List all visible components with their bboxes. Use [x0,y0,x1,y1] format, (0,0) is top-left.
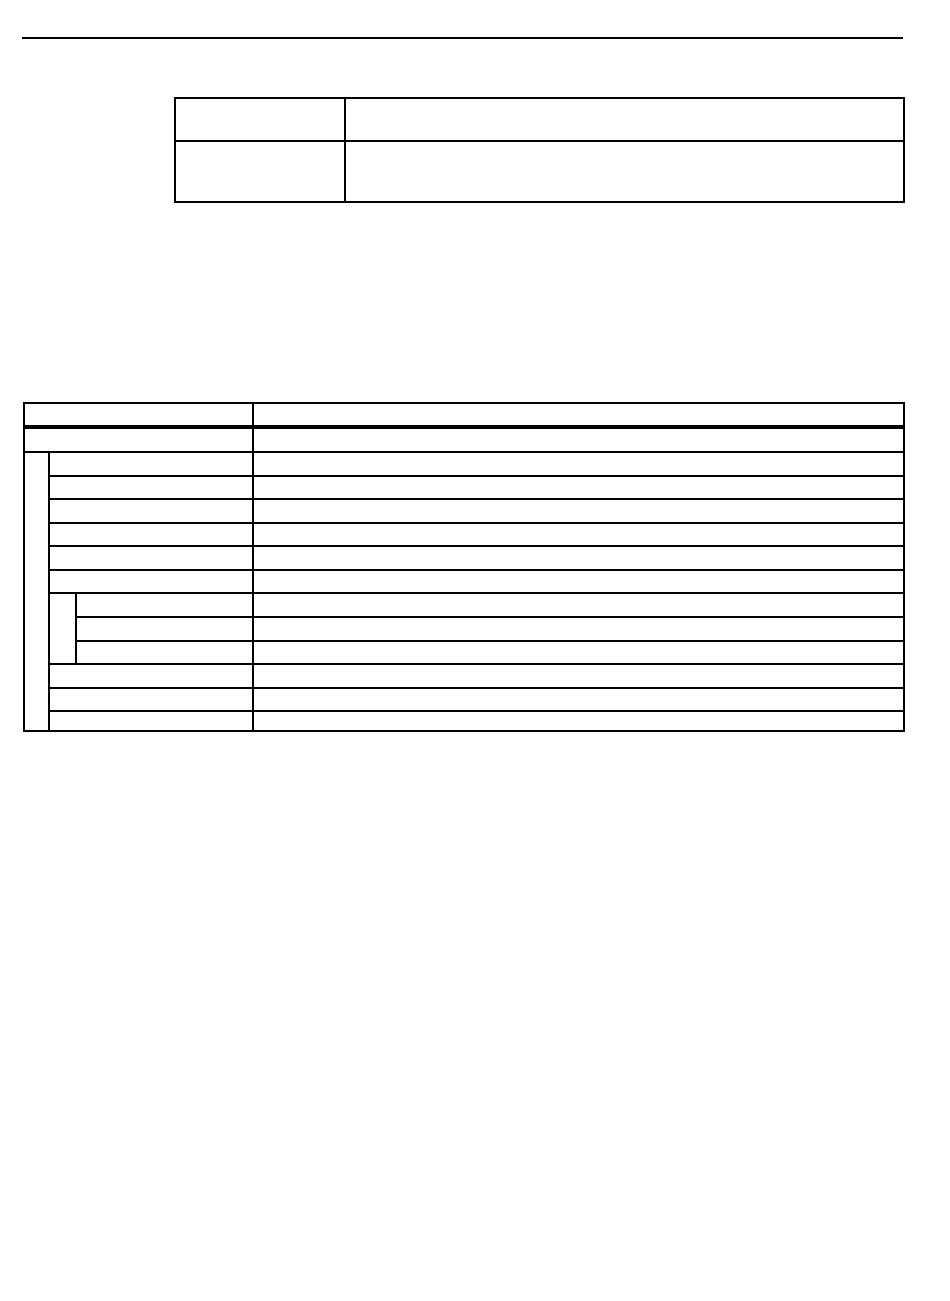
row-label-cell [49,664,253,688]
table-subrow [24,617,904,641]
subgroup-span-cell [49,593,76,664]
row-label-cell [49,688,253,711]
row-label-cell [49,523,253,546]
row-label-cell [49,570,253,593]
table-intro-row [24,427,904,452]
row-value-cell [253,688,904,711]
subrow-label-cell [76,617,253,641]
info-table-row [175,141,904,202]
table-header-label-cell [24,403,253,427]
subrow-value-cell [253,617,904,641]
subrow-value-cell [253,641,904,664]
row-value-cell [253,476,904,499]
row-value-cell [253,546,904,570]
row-label-cell [49,711,253,731]
table-row [24,499,904,523]
row-value-cell [253,523,904,546]
table-row [24,664,904,688]
table-row [24,452,904,476]
subrow-label-cell [76,593,253,617]
info-table-row [175,98,904,141]
row-value-cell [253,570,904,593]
table-row [24,523,904,546]
info-table-row2-value-cell [345,141,904,202]
document-page [0,0,950,1301]
parameter-table [23,402,905,732]
table-header-value-cell [253,403,904,427]
page-header-rule [22,37,903,39]
table-row [24,711,904,731]
info-table-row1-label-cell [175,98,345,141]
row-value-cell [253,452,904,476]
intro-row-label-cell [24,427,253,452]
row-label-cell [49,476,253,499]
row-value-cell [253,499,904,523]
info-table [174,97,905,203]
row-value-cell [253,711,904,731]
row-label-cell [49,452,253,476]
row-value-cell [253,664,904,688]
table-subrow [24,641,904,664]
subrow-label-cell [76,641,253,664]
table-row [24,546,904,570]
subrow-value-cell [253,593,904,617]
table-subrow [24,593,904,617]
group-span-cell [24,452,49,731]
table-row [24,688,904,711]
row-label-cell [49,546,253,570]
info-table-row2-label-cell [175,141,345,202]
info-table-row1-value-cell [345,98,904,141]
table-row [24,570,904,593]
table-row [24,476,904,499]
row-label-cell [49,499,253,523]
intro-row-value-cell [253,427,904,452]
table-header-row [24,403,904,427]
